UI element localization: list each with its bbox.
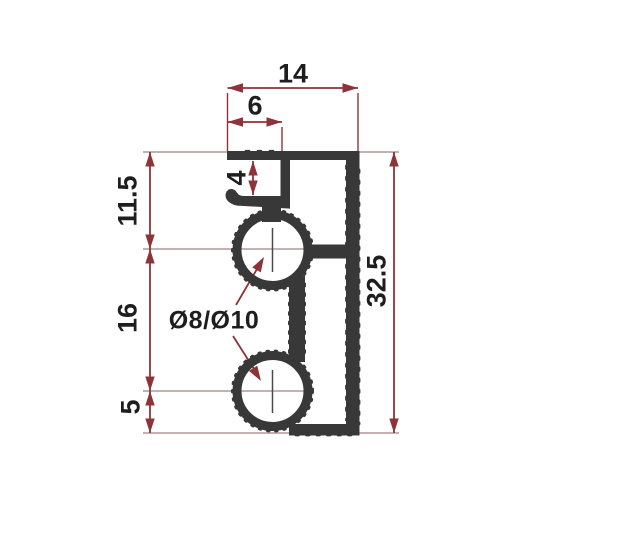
- profile-web-horizontal: [306, 245, 347, 259]
- arrowhead: [145, 235, 154, 250]
- arrowhead: [228, 83, 244, 93]
- dim-label-flange-offset: 6: [247, 93, 262, 120]
- bore-diameter-label: Ø8/Ø10: [169, 309, 260, 334]
- dim-label-slot-opening: 4: [224, 170, 251, 185]
- dim-label-top-width: 14: [278, 61, 308, 88]
- dim-label-overall-height: 32.5: [364, 255, 391, 308]
- arrowhead: [267, 117, 283, 127]
- dim-label-center-spacing: 16: [115, 303, 142, 333]
- arrowhead: [228, 117, 244, 127]
- arrowhead: [343, 83, 359, 93]
- arrowhead: [389, 152, 398, 167]
- arrowhead: [145, 377, 154, 392]
- technical-drawing: 14 6 4 11.5 16 5 32.5 Ø8/Ø10: [0, 0, 621, 554]
- dim-label-top-to-center: 11.5: [115, 175, 142, 226]
- drawing-linework: [0, 0, 621, 554]
- arrowhead: [145, 391, 154, 406]
- profile-cross-section: [226, 151, 360, 436]
- arrowhead: [145, 249, 154, 264]
- profile-web-vertical: [289, 276, 305, 362]
- dim-label-center-to-bottom: 5: [118, 399, 145, 414]
- arrowhead: [145, 152, 154, 167]
- profile-stub: [281, 155, 291, 197]
- arrowhead: [389, 419, 398, 434]
- arrowhead: [145, 419, 154, 434]
- arrowhead: [252, 257, 264, 272]
